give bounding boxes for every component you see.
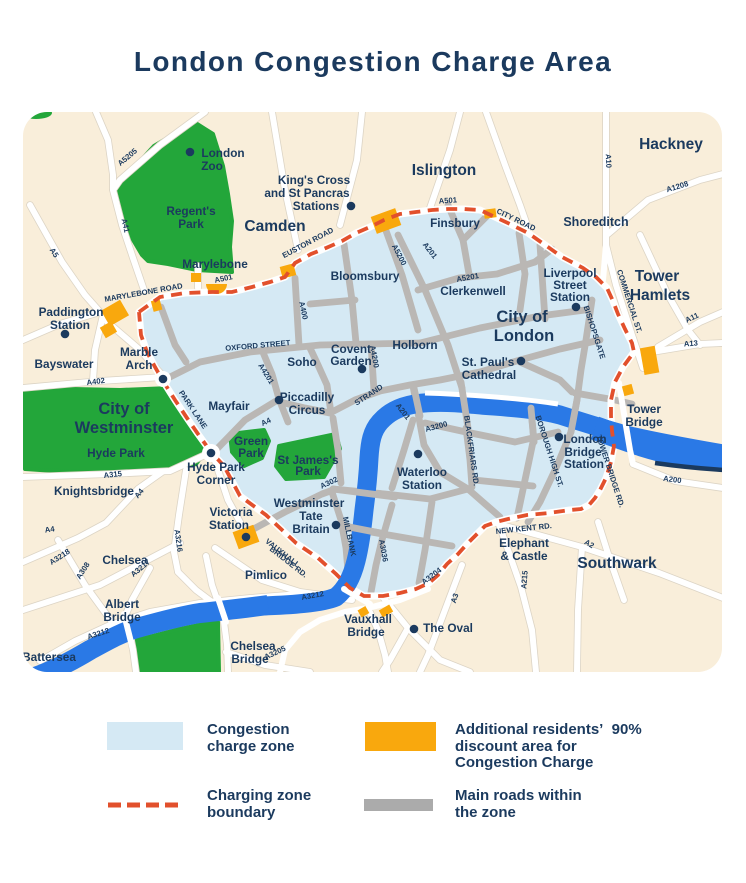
svg-text:Westminster: Westminster: [274, 496, 345, 510]
svg-text:City of: City of: [98, 400, 150, 418]
svg-text:Station: Station: [209, 518, 249, 532]
svg-text:Islington: Islington: [412, 162, 477, 179]
svg-text:Park: Park: [295, 464, 321, 478]
svg-text:Park: Park: [238, 446, 264, 460]
svg-text:Camden: Camden: [244, 218, 305, 235]
svg-text:and St Pancras: and St Pancras: [264, 186, 350, 200]
svg-text:Elephant: Elephant: [499, 536, 549, 550]
svg-text:Hackney: Hackney: [639, 136, 703, 153]
svg-text:Marylebone: Marylebone: [182, 257, 248, 271]
svg-text:A501: A501: [438, 195, 458, 205]
svg-text:Pimlico: Pimlico: [245, 568, 287, 582]
svg-text:Zoo: Zoo: [201, 159, 223, 173]
svg-text:Waterloo: Waterloo: [397, 465, 447, 479]
svg-text:Station: Station: [50, 318, 90, 332]
svg-text:Hamlets: Hamlets: [630, 287, 690, 304]
svg-text:Holborn: Holborn: [392, 338, 437, 352]
svg-text:Hyde Park: Hyde Park: [87, 446, 145, 460]
svg-text:Park: Park: [178, 217, 204, 231]
svg-text:Marble: Marble: [120, 345, 158, 359]
svg-text:King's Cross: King's Cross: [278, 173, 351, 187]
svg-text:Cathedral: Cathedral: [462, 368, 516, 382]
svg-text:Albert: Albert: [105, 597, 139, 611]
svg-text:Bridge: Bridge: [103, 610, 141, 624]
svg-text:St. Paul's: St. Paul's: [462, 355, 515, 369]
svg-text:A10: A10: [604, 154, 613, 168]
svg-text:Vauxhall: Vauxhall: [344, 612, 392, 626]
svg-text:Bayswater: Bayswater: [34, 357, 93, 371]
svg-text:Tower: Tower: [635, 268, 680, 285]
svg-text:Westminster: Westminster: [75, 419, 174, 437]
svg-text:Mayfair: Mayfair: [208, 399, 250, 413]
svg-text:London: London: [201, 146, 244, 160]
svg-text:Station: Station: [564, 457, 604, 471]
svg-text:Knightsbridge: Knightsbridge: [54, 484, 134, 498]
svg-text:Bridge: Bridge: [625, 415, 663, 429]
svg-text:London: London: [494, 327, 554, 345]
svg-text:& Castle: & Castle: [500, 549, 548, 563]
svg-text:Corner: Corner: [197, 473, 236, 487]
svg-text:Tate: Tate: [299, 509, 323, 523]
svg-text:Hyde Park: Hyde Park: [187, 460, 245, 474]
svg-text:Station: Station: [402, 478, 442, 492]
svg-text:A215: A215: [519, 570, 530, 590]
svg-text:Stations: Stations: [293, 199, 340, 213]
svg-text:Battersea: Battersea: [22, 650, 76, 664]
svg-text:City of: City of: [496, 308, 548, 326]
svg-text:Shoreditch: Shoreditch: [563, 215, 628, 229]
svg-text:Victoria: Victoria: [209, 505, 252, 519]
svg-text:Bridge: Bridge: [347, 625, 385, 639]
svg-text:The Oval: The Oval: [423, 621, 473, 635]
svg-text:Finsbury: Finsbury: [430, 216, 480, 230]
svg-text:Garden: Garden: [330, 354, 371, 368]
svg-text:Bloomsbury: Bloomsbury: [331, 269, 400, 283]
svg-text:Piccadilly: Piccadilly: [280, 390, 335, 404]
svg-text:Arch: Arch: [126, 358, 153, 372]
svg-text:Regent's: Regent's: [166, 204, 216, 218]
svg-text:Paddington: Paddington: [39, 305, 104, 319]
svg-text:Soho: Soho: [287, 355, 317, 369]
svg-text:Tower: Tower: [627, 402, 661, 416]
svg-text:Circus: Circus: [289, 403, 326, 417]
svg-text:Station: Station: [550, 290, 590, 304]
svg-text:Southwark: Southwark: [577, 555, 657, 572]
svg-text:A13: A13: [683, 339, 698, 349]
svg-text:Clerkenwell: Clerkenwell: [440, 284, 506, 298]
svg-text:Britain: Britain: [292, 522, 329, 536]
